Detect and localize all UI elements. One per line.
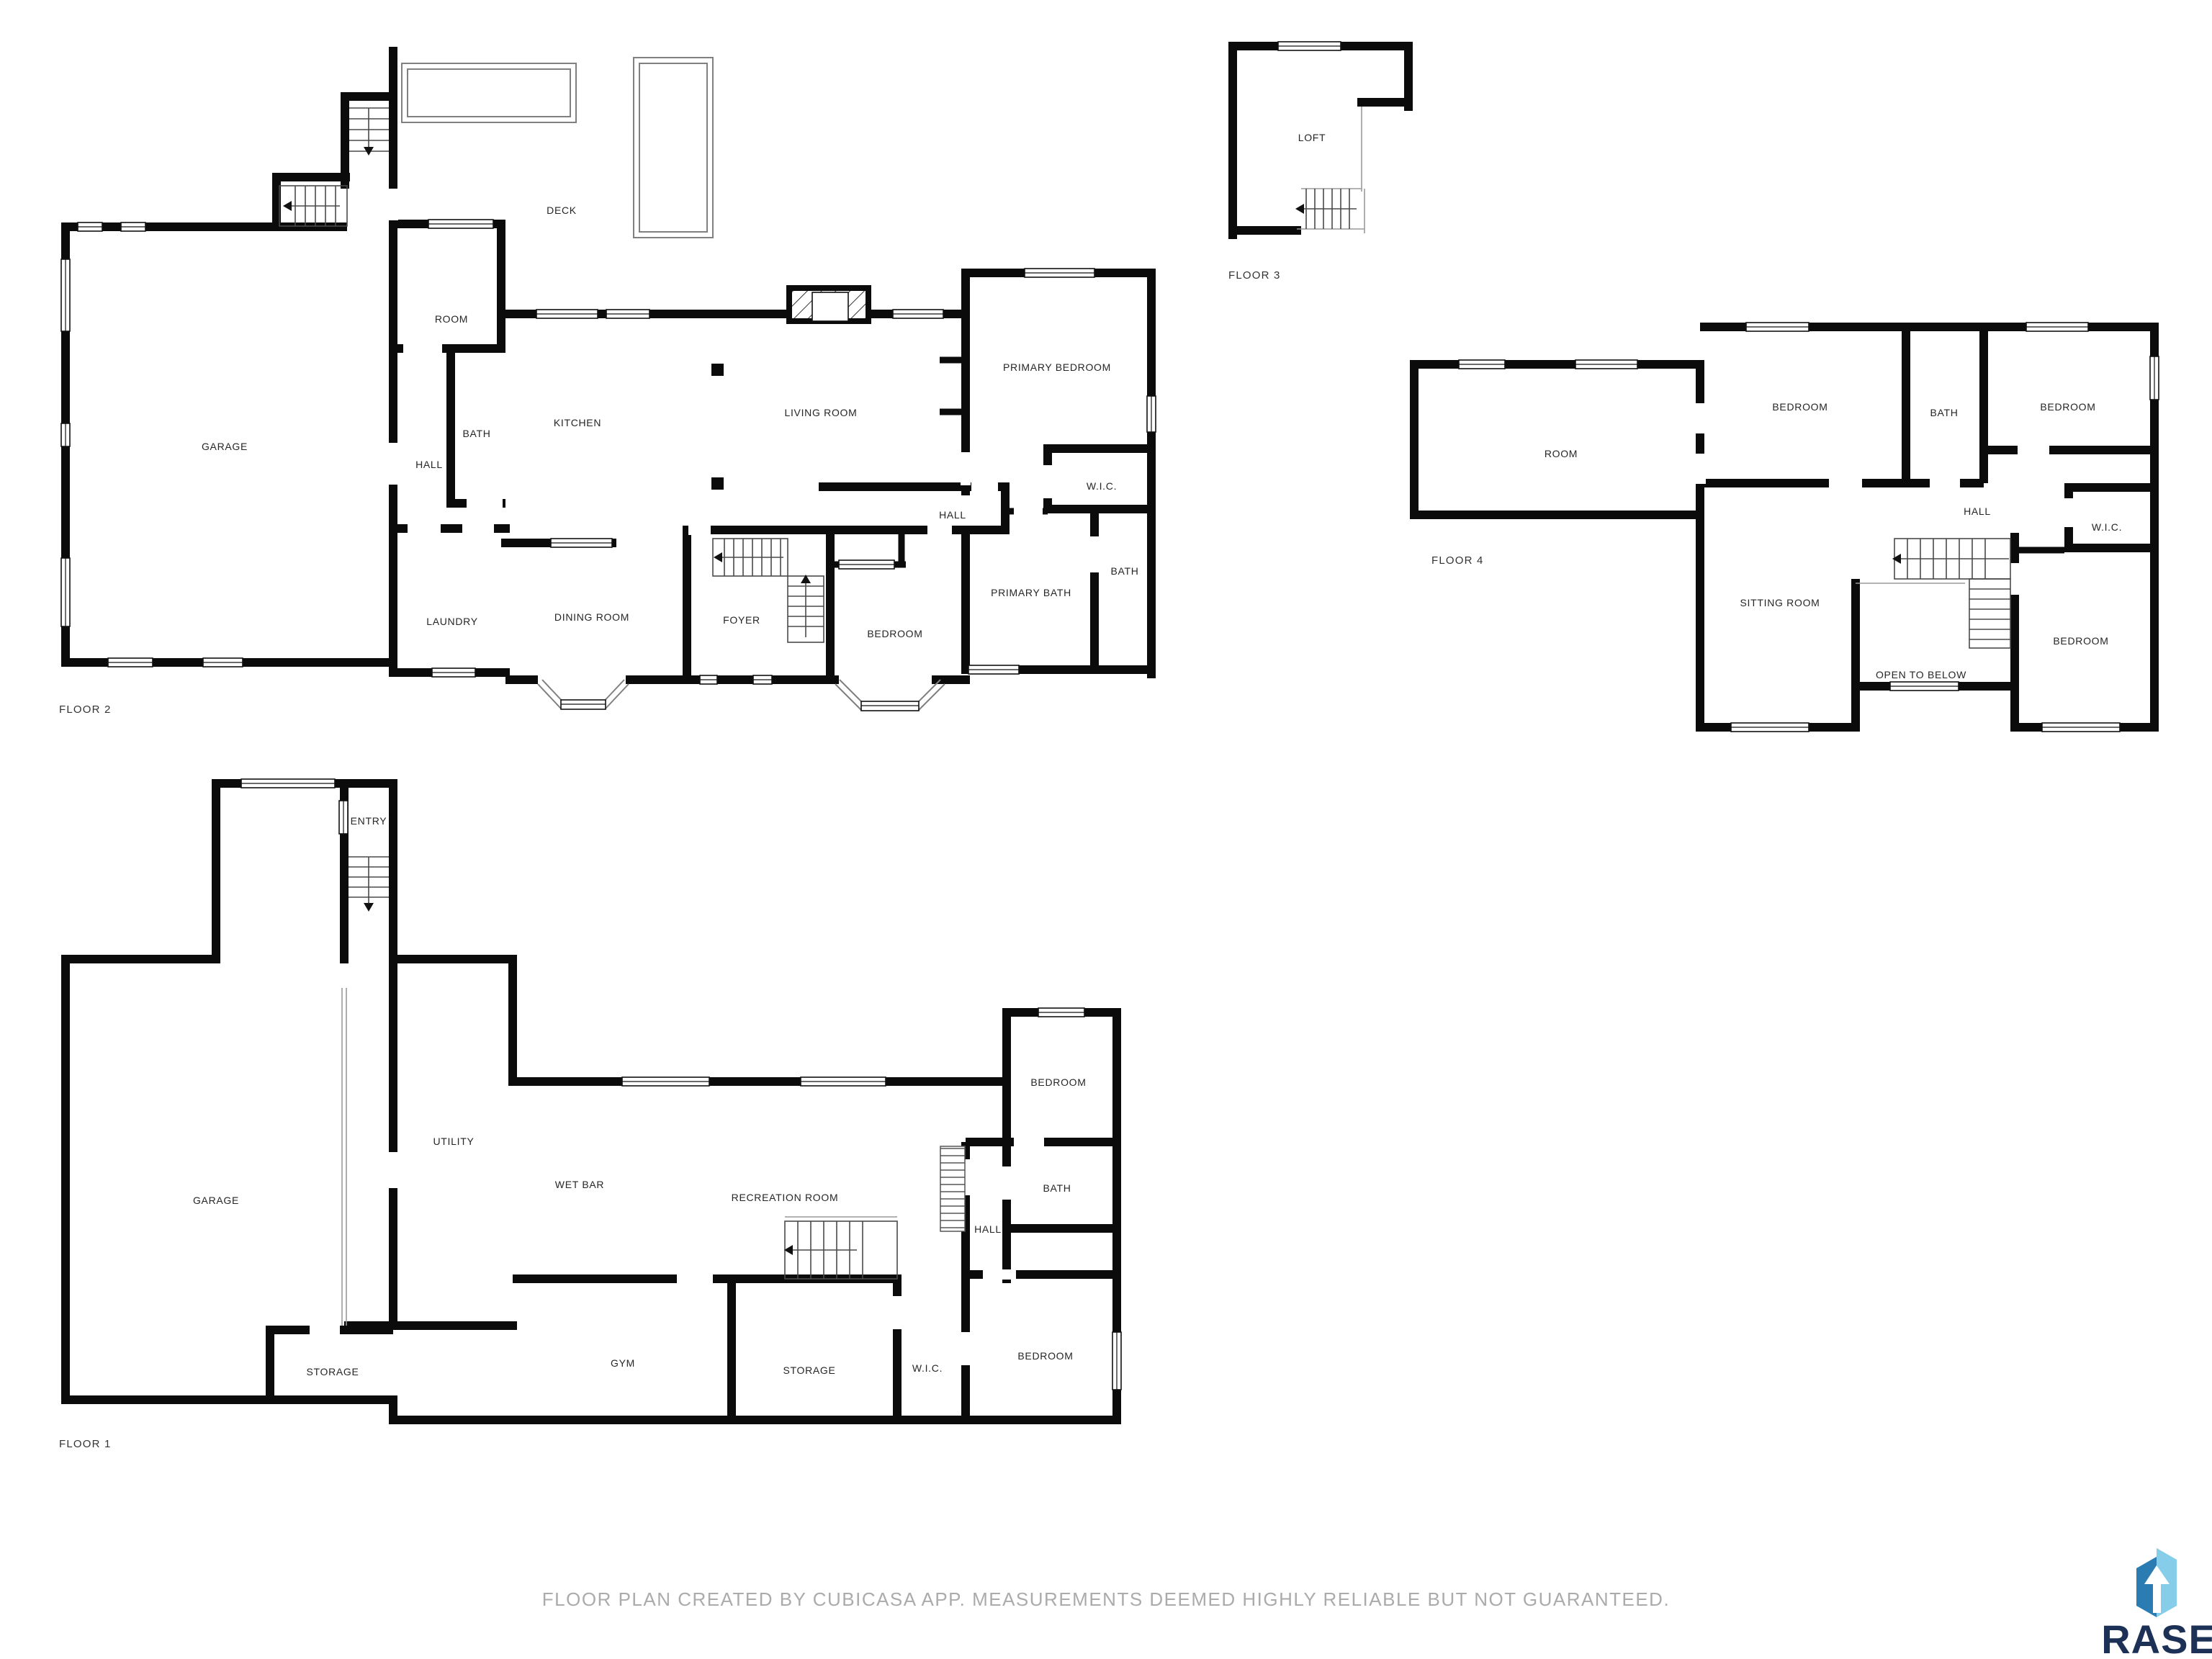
floor-2-plan: GARAGE ROOM DECK BATH HALL KITCHEN LIVIN… <box>50 40 1166 720</box>
room-label-bath-right-f2: BATH <box>1110 565 1138 577</box>
room-label-recreation-room: RECREATION ROOM <box>732 1192 839 1203</box>
room-label-kitchen: KITCHEN <box>554 417 601 428</box>
floor-2-labels: GARAGE ROOM DECK BATH HALL KITCHEN LIVIN… <box>59 204 1139 716</box>
floor-4-stairs <box>1856 539 2010 648</box>
room-label-primary-bedroom: PRIMARY BEDROOM <box>1003 361 1111 373</box>
utility-closet-hatch <box>940 1146 965 1231</box>
room-label-bedroom3-f4: BEDROOM <box>2053 635 2108 647</box>
room-label-living-room: LIVING ROOM <box>784 407 857 418</box>
room-label-gym: GYM <box>611 1357 635 1369</box>
floor-2-stairs-mid <box>279 186 347 226</box>
room-label-utility: UTILITY <box>433 1136 474 1147</box>
floor-plan-canvas: GARAGE ROOM DECK BATH HALL KITCHEN LIVIN… <box>0 0 2212 1659</box>
room-label-hall-f1: HALL <box>974 1223 1002 1235</box>
room-label-bedroom2-f1: BEDROOM <box>1017 1350 1073 1362</box>
room-label-deck: DECK <box>547 204 577 216</box>
room-label-room-f2: ROOM <box>435 313 468 325</box>
column-dot <box>711 477 724 490</box>
room-label-storage-mid: STORAGE <box>783 1364 835 1376</box>
floor-3-label: FLOOR 3 <box>1228 269 1281 282</box>
room-label-bath-f1: BATH <box>1043 1182 1071 1194</box>
room-label-sitting-room: SITTING ROOM <box>1740 597 1820 608</box>
room-label-dining-room: DINING ROOM <box>554 611 629 623</box>
floor-3-window <box>1278 42 1341 50</box>
brand-logo: RASE <box>2081 1541 2212 1659</box>
room-label-storage-bl: STORAGE <box>306 1366 359 1377</box>
entry-stairs <box>349 857 389 912</box>
fireplace <box>789 288 868 321</box>
room-label-open-to-below: OPEN TO BELOW <box>1876 669 1966 680</box>
disclaimer-text: FLOOR PLAN CREATED BY CUBICASA APP. MEAS… <box>0 1588 2212 1611</box>
room-label-wic-f1: W.I.C. <box>912 1362 943 1374</box>
floor-4-door-gaps <box>1696 403 2074 595</box>
foyer-stairs <box>713 539 824 642</box>
room-label-bath-left-f2: BATH <box>462 428 490 439</box>
room-label-wic-f4: W.I.C. <box>2092 521 2122 533</box>
floor-4-walls <box>1410 323 2159 732</box>
room-label-wic-f2: W.I.C. <box>1087 480 1117 492</box>
floor-1-label: FLOOR 1 <box>59 1438 112 1450</box>
bay-windows <box>538 680 945 711</box>
floor-3-labels: LOFT FLOOR 3 <box>1228 132 1326 282</box>
room-label-foyer: FOYER <box>723 614 760 626</box>
room-label-bedroom1-f4: BEDROOM <box>1772 401 1827 413</box>
room-label-bedroom1-f1: BEDROOM <box>1030 1076 1086 1088</box>
loft-stairs <box>1295 189 1357 229</box>
room-label-hall-right-f2: HALL <box>939 509 966 521</box>
brand-name: RASE <box>2101 1617 2212 1659</box>
floor-2-door-gaps <box>388 189 1100 572</box>
room-label-bath-f4: BATH <box>1930 407 1958 418</box>
room-label-garage-f2: GARAGE <box>202 441 248 452</box>
room-label-bedroom-f2: BEDROOM <box>867 628 922 639</box>
floor-4-plan: ROOM BEDROOM BATH BEDROOM HALL W.I.C. SI… <box>1404 317 2167 738</box>
room-label-primary-bath: PRIMARY BATH <box>991 587 1071 598</box>
floor-2-label: FLOOR 2 <box>59 703 112 716</box>
floor-4-windows <box>1459 323 2159 732</box>
floor-1-plan: ENTRY GARAGE UTILITY WET BAR RECREATION … <box>54 770 1127 1455</box>
room-label-laundry: LAUNDRY <box>426 616 478 627</box>
column-dot <box>711 364 724 376</box>
room-label-loft: LOFT <box>1298 132 1326 143</box>
floor-1-walls <box>61 779 1121 1424</box>
room-label-wet-bar: WET BAR <box>555 1179 604 1190</box>
floor-1-stairs-up <box>784 1217 897 1279</box>
room-label-entry: ENTRY <box>351 815 387 827</box>
room-label-room-f4: ROOM <box>1545 448 1578 459</box>
floor-4-label: FLOOR 4 <box>1431 554 1484 567</box>
room-label-bedroom2-f4: BEDROOM <box>2040 401 2095 413</box>
floor-3-plan: LOFT FLOOR 3 <box>1220 32 1451 284</box>
floor-1-door-gaps <box>310 1137 1044 1365</box>
room-label-garage-f1: GARAGE <box>193 1195 239 1206</box>
room-label-hall-f4: HALL <box>1964 505 1991 517</box>
brand-box-icon <box>2136 1548 2177 1617</box>
room-label-hall-left-f2: HALL <box>415 459 443 470</box>
floor-2-stairs-down <box>349 108 389 156</box>
